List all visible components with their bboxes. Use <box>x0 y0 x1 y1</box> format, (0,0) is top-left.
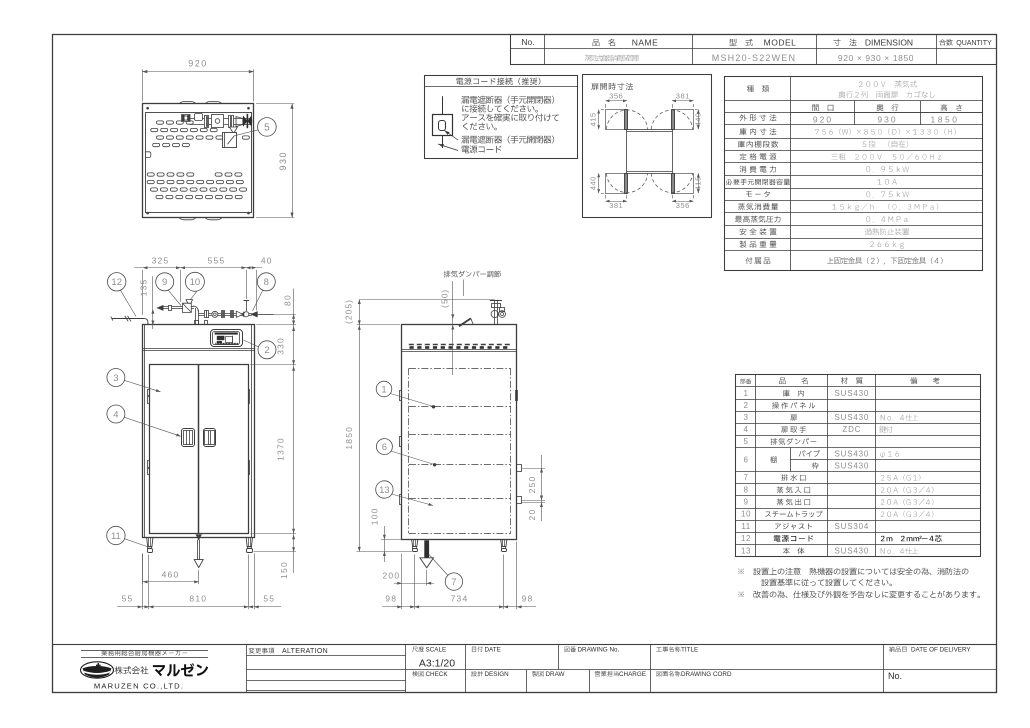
svg-text:A3:1/20: A3:1/20 <box>419 658 455 670</box>
svg-text:5: 5 <box>264 122 270 133</box>
svg-text:TITLE: TITLE <box>681 647 698 654</box>
svg-text:11: 11 <box>741 522 750 531</box>
svg-text:12: 12 <box>111 277 122 288</box>
svg-text:10: 10 <box>741 510 751 519</box>
svg-text:8: 8 <box>744 485 749 494</box>
svg-text:DRAW: DRAW <box>546 671 565 678</box>
svg-text:NAME: NAME <box>632 38 659 48</box>
svg-text:1370: 1370 <box>275 437 285 461</box>
svg-text:No.: No. <box>888 671 902 681</box>
svg-text:SUS430: SUS430 <box>835 461 870 470</box>
svg-text:2: 2 <box>264 345 269 356</box>
svg-text:98: 98 <box>522 593 534 603</box>
svg-text:DATE: DATE <box>485 647 501 654</box>
svg-text:356: 356 <box>609 91 623 100</box>
svg-text:460: 460 <box>162 569 180 579</box>
svg-text:9: 9 <box>162 277 167 288</box>
svg-text:1850: 1850 <box>931 115 960 125</box>
svg-text:6: 6 <box>744 455 749 464</box>
svg-text:440: 440 <box>588 176 597 190</box>
svg-text:250: 250 <box>527 476 537 494</box>
svg-text:10: 10 <box>190 277 201 288</box>
svg-text:ALTERATION: ALTERATION <box>282 648 328 655</box>
svg-text:8: 8 <box>264 277 269 288</box>
svg-text:20: 20 <box>527 509 537 521</box>
svg-text:930: 930 <box>278 151 288 171</box>
svg-text:920: 920 <box>813 115 833 125</box>
svg-text:3: 3 <box>744 413 749 422</box>
svg-text:55: 55 <box>122 593 134 603</box>
svg-text:ZDC: ZDC <box>842 425 861 434</box>
svg-text:1: 1 <box>381 384 386 395</box>
svg-text:920 × 930 × 1850: 920 × 930 × 1850 <box>838 53 914 63</box>
svg-text:555: 555 <box>208 255 226 265</box>
svg-text:DIMENSION: DIMENSION <box>865 38 913 48</box>
svg-text:6: 6 <box>382 442 387 453</box>
svg-text:No.: No. <box>521 37 534 47</box>
svg-text:7: 7 <box>744 473 749 482</box>
svg-text:325: 325 <box>152 255 170 265</box>
svg-text:DESIGN: DESIGN <box>485 671 510 678</box>
svg-text:CHARGE: CHARGE <box>619 671 646 678</box>
svg-text:12: 12 <box>741 534 751 543</box>
svg-text:SUS430: SUS430 <box>835 449 870 458</box>
svg-text:415: 415 <box>588 112 597 126</box>
svg-text:SUS430: SUS430 <box>835 413 870 422</box>
svg-text:9: 9 <box>744 498 749 507</box>
svg-text:MARUZEN CO.,LTD.: MARUZEN CO.,LTD. <box>94 682 184 691</box>
svg-text:80: 80 <box>283 294 293 306</box>
svg-text:381: 381 <box>676 91 690 100</box>
svg-text:SCALE: SCALE <box>426 647 447 654</box>
svg-text:734: 734 <box>451 593 469 603</box>
svg-text:40: 40 <box>261 255 273 265</box>
svg-text:810: 810 <box>189 593 207 603</box>
svg-text:7: 7 <box>451 577 456 588</box>
svg-text:330: 330 <box>275 337 285 355</box>
svg-text:98: 98 <box>385 593 397 603</box>
svg-text:2: 2 <box>744 401 749 410</box>
svg-text:SUS430: SUS430 <box>835 546 870 555</box>
svg-text:SUS430: SUS430 <box>835 389 870 398</box>
svg-text:920: 920 <box>188 59 208 69</box>
svg-text:930: 930 <box>877 115 897 125</box>
svg-text:3: 3 <box>113 373 118 384</box>
svg-text:(205): (205) <box>344 299 354 324</box>
svg-text:QUANTITY: QUANTITY <box>956 40 992 47</box>
svg-text:(50): (50) <box>439 289 449 308</box>
svg-text:5: 5 <box>744 437 749 446</box>
svg-text:MODEL: MODEL <box>764 38 797 48</box>
svg-text:11: 11 <box>111 531 121 542</box>
svg-text:13: 13 <box>741 546 751 555</box>
svg-text:DATE OF DELIVERY: DATE OF DELIVERY <box>911 647 971 654</box>
svg-text:MSH20-S22WEN: MSH20-S22WEN <box>712 53 796 63</box>
svg-text:55: 55 <box>263 593 275 603</box>
svg-text:200: 200 <box>383 571 401 581</box>
svg-text:4: 4 <box>744 425 749 434</box>
svg-text:DRAWING No.: DRAWING No. <box>578 647 620 654</box>
svg-text:13: 13 <box>379 485 390 496</box>
svg-text:356: 356 <box>676 201 690 210</box>
svg-text:SUS304: SUS304 <box>835 522 870 531</box>
svg-text:135: 135 <box>138 279 148 297</box>
svg-text:100: 100 <box>370 507 380 525</box>
svg-text:DRAWING CORD: DRAWING CORD <box>681 671 732 678</box>
svg-text:150: 150 <box>279 561 289 579</box>
svg-text:4: 4 <box>113 409 118 420</box>
svg-text:1850: 1850 <box>344 426 354 450</box>
svg-text:1: 1 <box>744 389 749 398</box>
svg-text:381: 381 <box>609 201 623 210</box>
svg-text:CHECK: CHECK <box>426 671 449 678</box>
